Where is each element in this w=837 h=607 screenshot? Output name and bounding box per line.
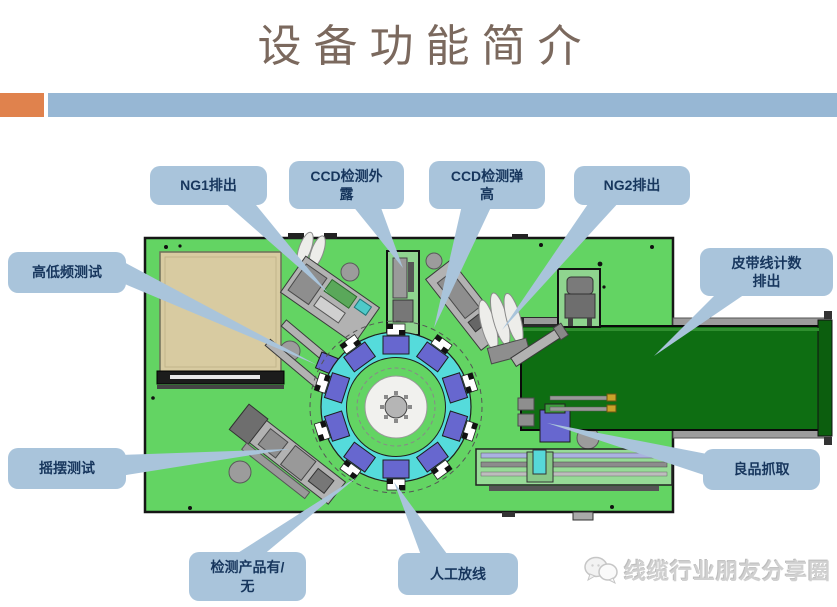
callout-manual-feed-label: 人工放线 [430,565,486,583]
callout-ng2: NG2排出 [574,166,690,205]
callout-swing-test-label: 摇摆测试 [39,459,95,477]
callout-ccd-exposure-label: CCD检测外 露 [310,167,382,203]
ccd-camera-unit [387,251,419,335]
callout-manual-feed: 人工放线 [398,553,518,595]
callout-detect-presence: 检测产品有/ 无 [189,552,306,601]
watermark: 线缆行业朋友分享圈 [584,554,831,586]
watermark-text: 线缆行业朋友分享圈 [624,554,831,586]
callout-swing-test: 摇摆测试 [8,448,126,489]
callout-ng1-label: NG1排出 [180,176,237,194]
callout-detect-presence-label: 检测产品有/ 无 [211,558,285,594]
callout-good-pick: 良品抓取 [703,449,820,490]
callout-hi-lo-test-label: 高低频测试 [32,263,102,281]
callout-ccd-spring: CCD检测弹 高 [429,161,545,209]
motor-enclosure [558,269,600,327]
callout-belt-count-label: 皮带线计数 排出 [732,254,802,290]
callout-good-pick-label: 良品抓取 [734,460,790,478]
callout-ccd-exposure: CCD检测外 露 [289,161,404,209]
callout-ccd-spring-label: CCD检测弹 高 [451,167,523,203]
callout-ng2-label: NG2排出 [604,176,661,194]
callout-ng1: NG1排出 [150,166,267,205]
callout-hi-lo-test: 高低频测试 [8,252,126,293]
machine-diagram [0,0,837,607]
callout-belt-count: 皮带线计数 排出 [700,248,833,296]
chat-bubbles-icon [584,556,618,584]
slide: 设备功能简介 [0,0,837,607]
